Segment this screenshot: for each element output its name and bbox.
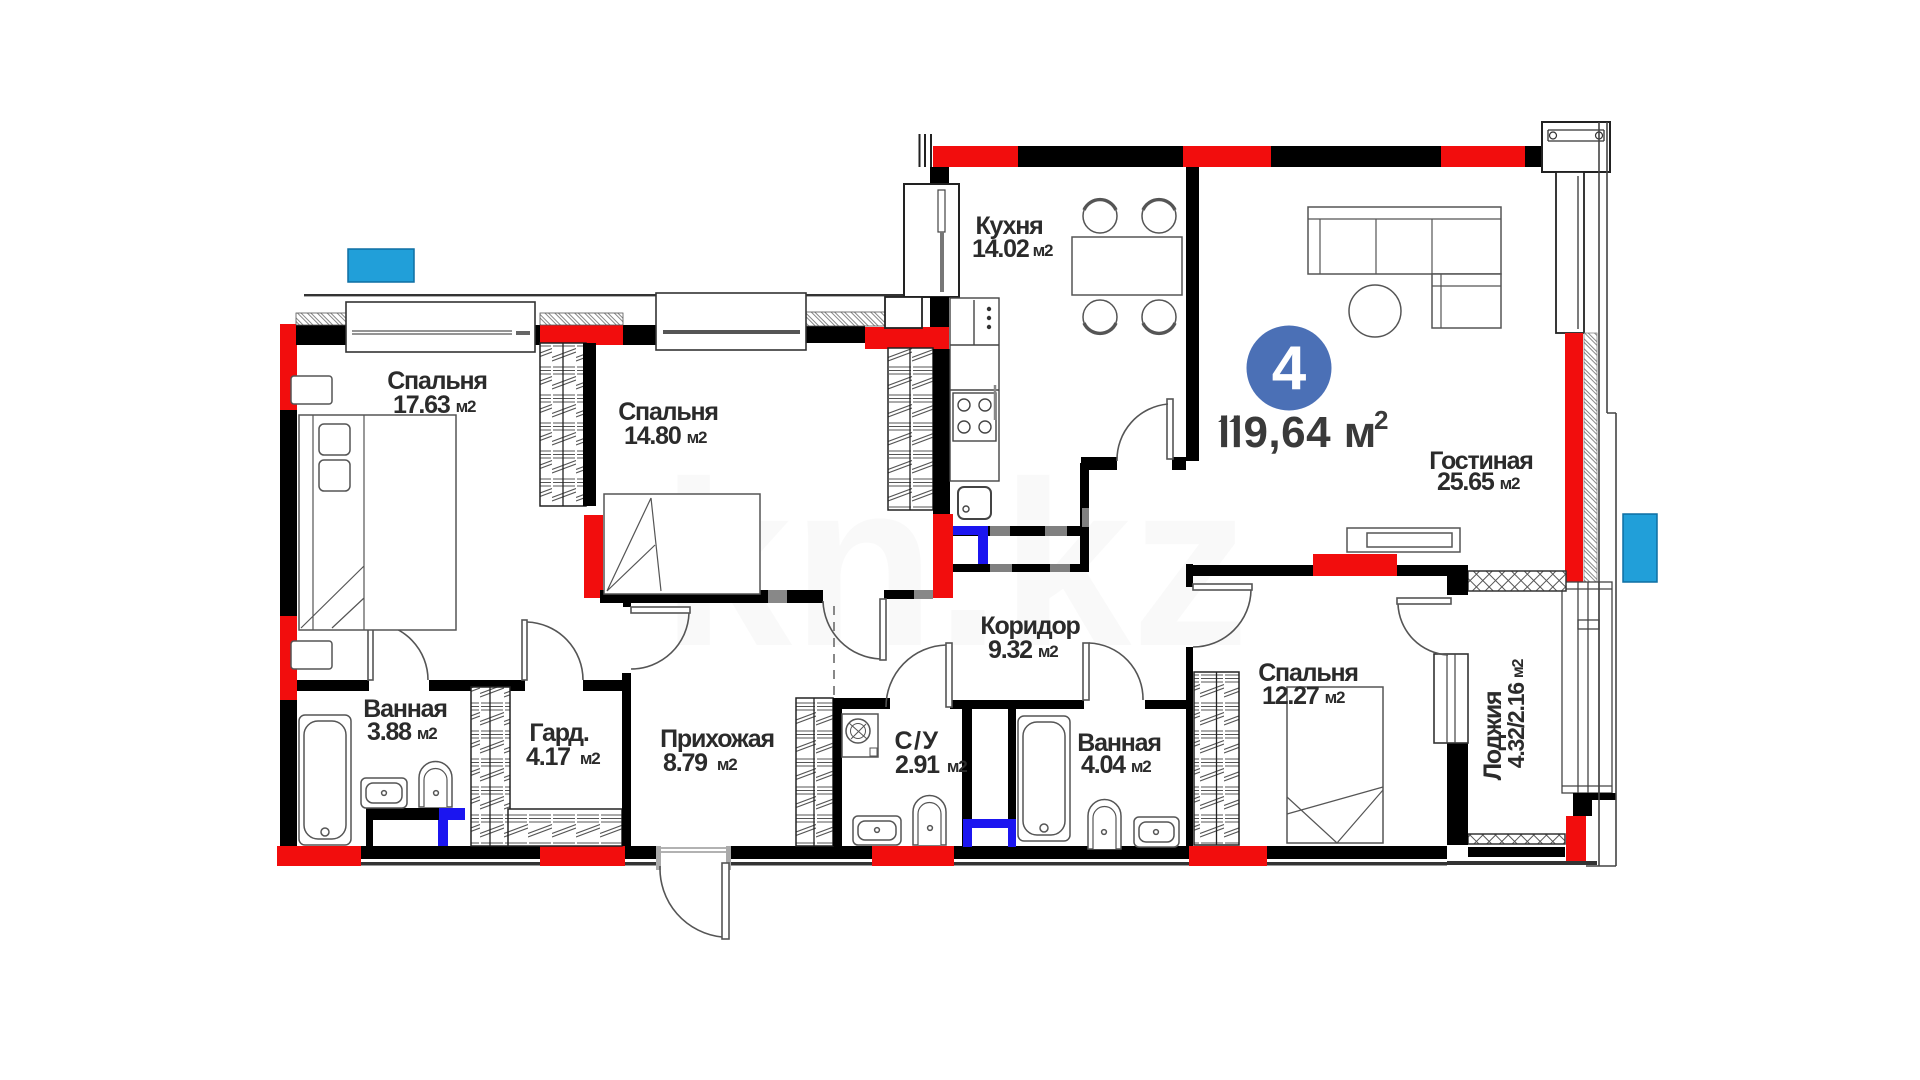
svg-text:ll9,64 м: ll9,64 м — [1218, 408, 1377, 457]
svg-text:4: 4 — [1272, 334, 1307, 403]
svg-text:2: 2 — [1374, 405, 1388, 435]
